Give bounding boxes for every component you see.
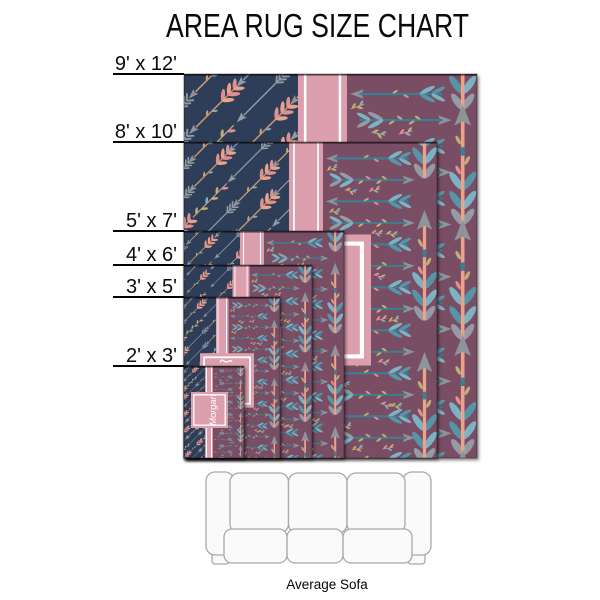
svg-text:9' x 12': 9' x 12' — [115, 53, 177, 75]
svg-text:AREA RUG SIZE CHART: AREA RUG SIZE CHART — [166, 7, 469, 44]
svg-text:Morgan: Morgan — [208, 394, 218, 425]
svg-text:2' x 3': 2' x 3' — [126, 345, 177, 367]
svg-text:8' x 10': 8' x 10' — [115, 121, 177, 143]
svg-text:3' x 5': 3' x 5' — [126, 276, 177, 298]
svg-text:5' x 7': 5' x 7' — [126, 210, 177, 232]
svg-text:4' x 6': 4' x 6' — [126, 244, 177, 266]
svg-text:Average Sofa: Average Sofa — [286, 577, 368, 592]
